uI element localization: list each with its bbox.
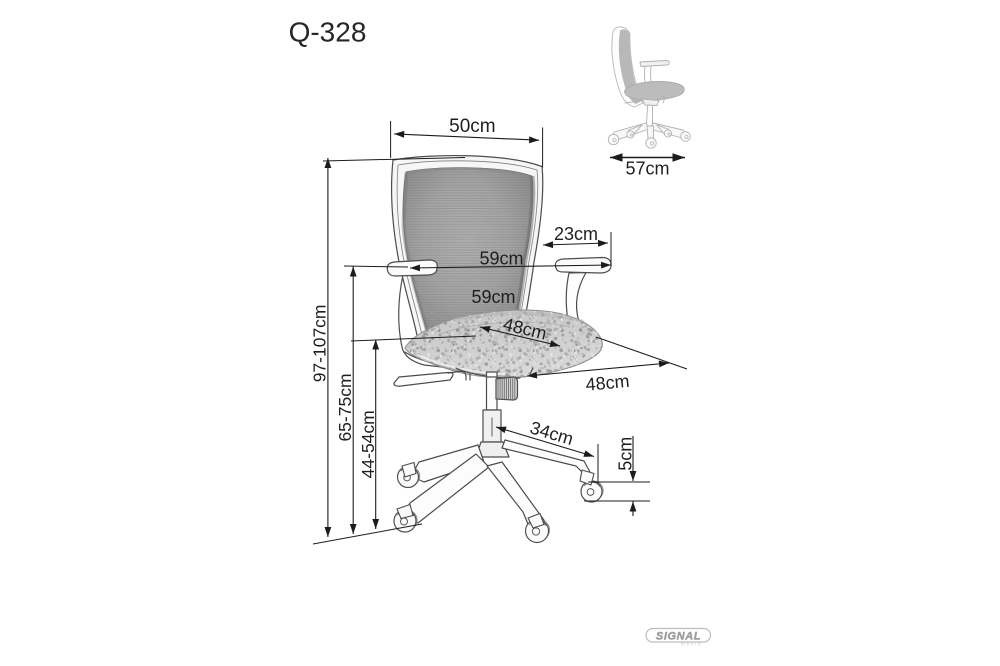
svg-text:5cm: 5cm — [616, 437, 636, 471]
svg-text:59cm: 59cm — [471, 287, 515, 307]
svg-text:Q-328: Q-328 — [289, 17, 367, 48]
svg-text:44-54cm: 44-54cm — [358, 410, 378, 478]
svg-text:50cm: 50cm — [449, 116, 495, 137]
svg-text:48cm: 48cm — [585, 371, 631, 395]
svg-text:59cm: 59cm — [479, 249, 523, 269]
svg-text:57cm: 57cm — [625, 159, 669, 179]
svg-text:23cm: 23cm — [554, 224, 598, 244]
svg-text:meble: meble — [681, 642, 703, 648]
svg-text:97-107cm: 97-107cm — [310, 304, 330, 382]
svg-text:65-75cm: 65-75cm — [335, 373, 355, 441]
